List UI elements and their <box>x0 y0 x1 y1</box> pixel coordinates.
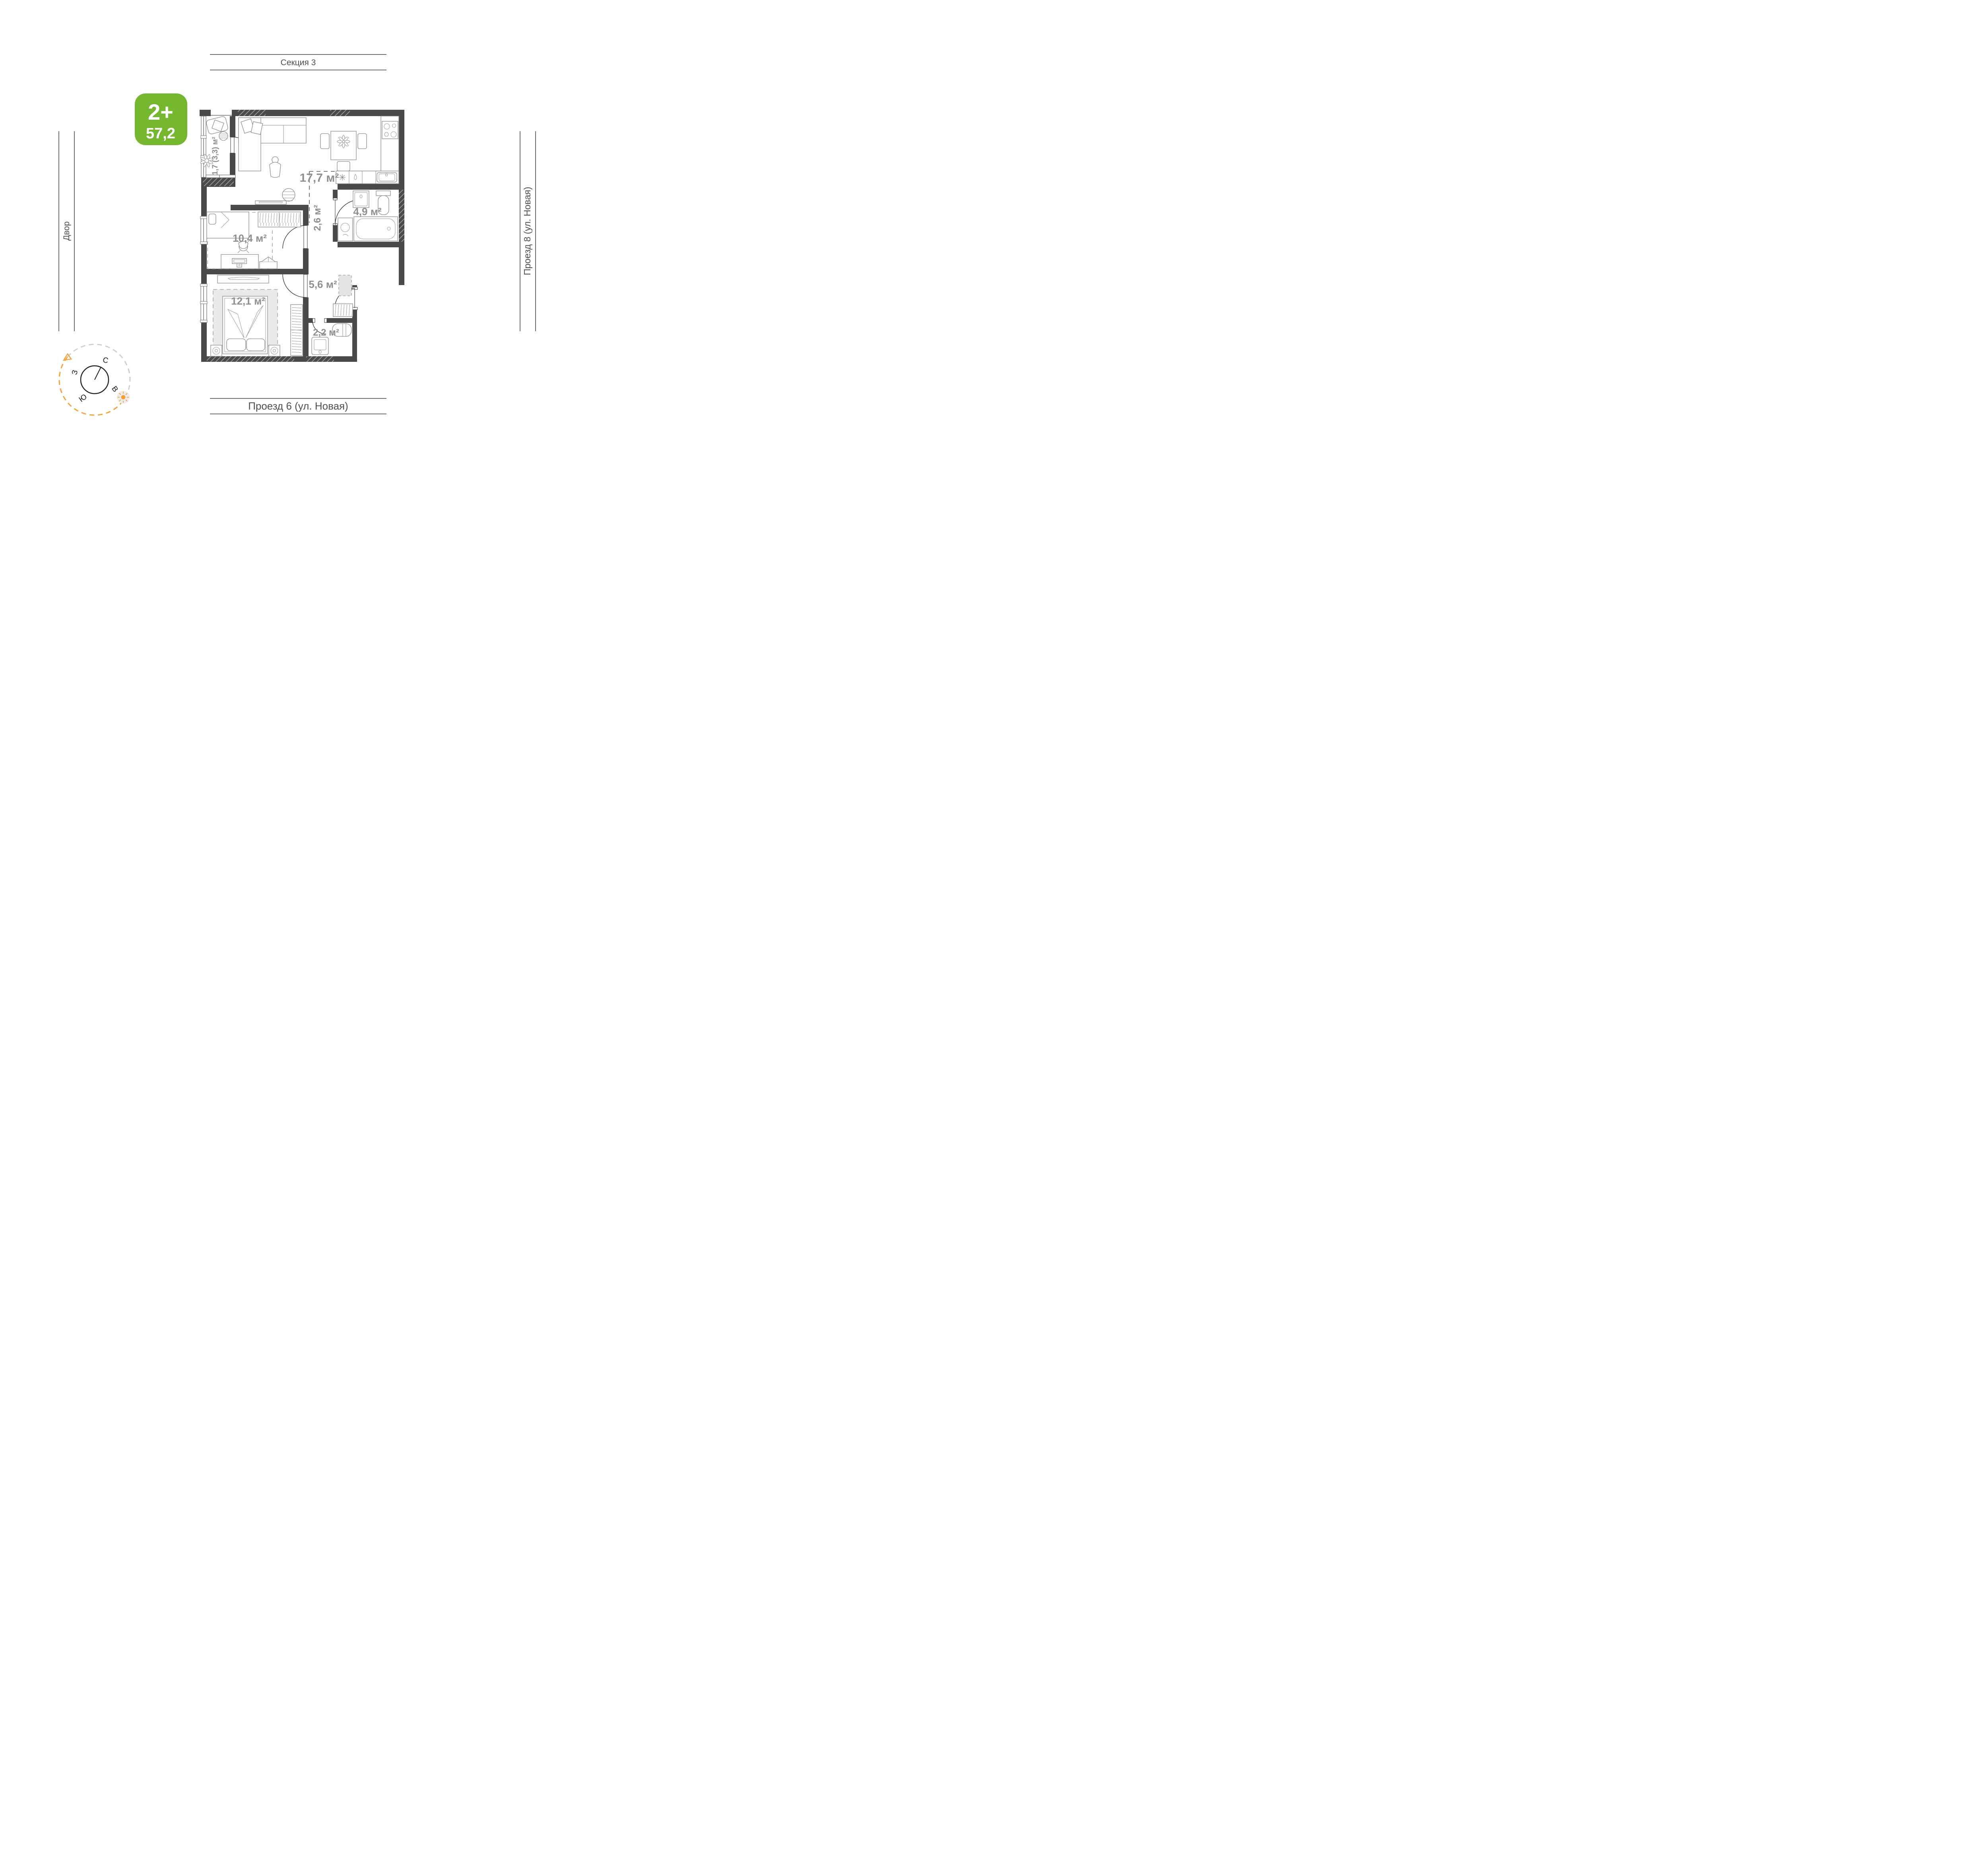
kitchen-sink <box>377 173 397 182</box>
room-label-bedroom1: 10,4 м² <box>233 232 267 244</box>
wall-right-lower-b <box>352 310 357 362</box>
balcony-striped-pouf <box>219 132 228 140</box>
wall-band-hatch <box>203 178 234 186</box>
corridor-cabinet-dashed <box>339 275 351 296</box>
kitchen-counter-bottom <box>336 171 399 184</box>
sun-icon <box>117 391 130 404</box>
wall-bathroom-bottom <box>338 242 404 247</box>
flower-centerpiece <box>337 135 350 148</box>
badge-rooms-label: 2+ <box>148 99 173 124</box>
pillow-right <box>247 339 265 351</box>
compass-north: С <box>102 356 109 365</box>
room-label-bedroom2: 12,1 м² <box>231 295 265 307</box>
wall-bottom-hatch-2 <box>306 356 334 362</box>
wardrobe-bedroom1 <box>258 212 301 227</box>
wall-bathroom-top <box>338 184 399 190</box>
room-label-storage: 2,2 м² <box>313 327 339 338</box>
badge-area-value: 57,2 <box>146 125 175 142</box>
room-label-hall: 2,6 м² <box>312 205 323 231</box>
wall-left-b <box>201 244 207 284</box>
bedroom2-window <box>200 284 207 322</box>
storage-washer <box>312 337 328 355</box>
compass-west: З <box>70 369 80 376</box>
person-figure <box>270 157 281 178</box>
wall-storage-top-b <box>327 318 352 323</box>
bedroom2-door <box>283 274 307 297</box>
bathroom-sink <box>353 191 369 208</box>
apartment-badge: 2+ 57,2 <box>135 93 187 145</box>
wall-bedroom1-right-a <box>303 210 309 225</box>
dining-chair-left <box>320 134 329 149</box>
wall-bathroom-left-a <box>333 190 338 199</box>
dining-chair-right <box>358 134 367 149</box>
floorplan: 17,7 м² 1,7 (3,3) м² 2,6 м² 4,9 м² 10,4 … <box>200 110 404 362</box>
desk <box>221 254 258 269</box>
coat-rack <box>333 304 353 317</box>
wall-right-shaft-hatch <box>399 190 404 242</box>
nightstand-speaker-right <box>269 345 280 356</box>
striped-pouf <box>282 188 295 201</box>
wardrobe-bedroom2 <box>291 305 303 355</box>
compass: С З В Ю <box>59 344 130 415</box>
pillow-left <box>227 339 246 351</box>
guide-top-label: Секция 3 <box>281 58 316 67</box>
wall-top-shaft-hatch-2 <box>330 110 350 116</box>
nightstand-lamp <box>260 257 277 269</box>
bedroom1-door <box>283 225 307 249</box>
bedroom2-furniture <box>211 275 303 356</box>
tv-console <box>255 201 286 204</box>
room-label-balcony: 1,7 (3,3) м² <box>211 137 219 175</box>
bathtub <box>354 217 398 241</box>
compass-south: Ю <box>78 392 89 404</box>
wall-left-c <box>201 322 207 362</box>
compass-east: В <box>110 385 119 394</box>
guide-right-label: Проезд 8 (ул. Новая) <box>522 187 532 276</box>
dining-chair-bottom <box>337 161 350 171</box>
room-label-corridor: 5,6 м² <box>309 278 337 290</box>
living-kitchen-furniture <box>239 116 399 204</box>
hob-symbol <box>339 174 346 181</box>
wall-storage-top-a <box>309 318 313 323</box>
wall-bottom-hatch-1 <box>207 356 294 362</box>
nightstand-speaker-left <box>211 345 222 356</box>
wall-balcony-partition-a <box>230 116 235 137</box>
guide-bottom-label: Проезд 6 (ул. Новая) <box>248 400 348 412</box>
guide-left-label: Двор <box>62 221 71 241</box>
bedroom1-window <box>200 216 207 244</box>
guide-left: Двор <box>59 131 74 331</box>
guide-bottom: Проезд 6 (ул. Новая) <box>210 398 386 414</box>
guide-right: Проезд 8 (ул. Новая) <box>520 131 536 331</box>
room-label-bathroom: 4,9 м² <box>353 206 382 217</box>
floorplan-page: Секция 3 Проезд 6 (ул. Новая) Двор Проез… <box>0 0 596 468</box>
wall-top-shaft-hatch-1 <box>238 110 266 116</box>
guide-top: Секция 3 <box>210 54 386 70</box>
room-label-living-kitchen: 17,7 м² <box>300 171 339 184</box>
floorplan-canvas: Секция 3 Проезд 6 (ул. Новая) Двор Проез… <box>0 0 596 468</box>
wall-bedroom2-right <box>303 297 309 356</box>
tv-console-bedroom2 <box>217 275 269 283</box>
wall-balcony-partition-b <box>230 153 235 177</box>
wall-bathroom-left-b <box>333 225 338 242</box>
wall-living-bottom <box>231 205 309 210</box>
wall-bedroom-divider <box>201 269 309 274</box>
washing-machine <box>338 218 353 241</box>
wall-top-balcony-block <box>200 110 211 116</box>
wall-bedroom1-right-b <box>303 249 309 269</box>
dining-table <box>320 131 367 171</box>
